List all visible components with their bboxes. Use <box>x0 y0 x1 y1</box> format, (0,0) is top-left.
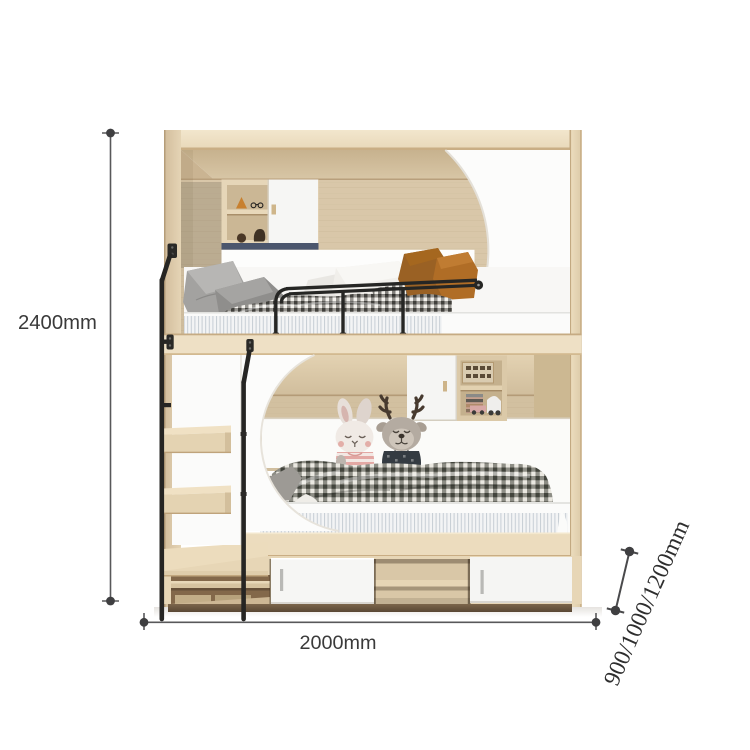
svg-text:2000mm: 2000mm <box>300 632 377 654</box>
svg-text:2400mm: 2400mm <box>18 312 97 334</box>
